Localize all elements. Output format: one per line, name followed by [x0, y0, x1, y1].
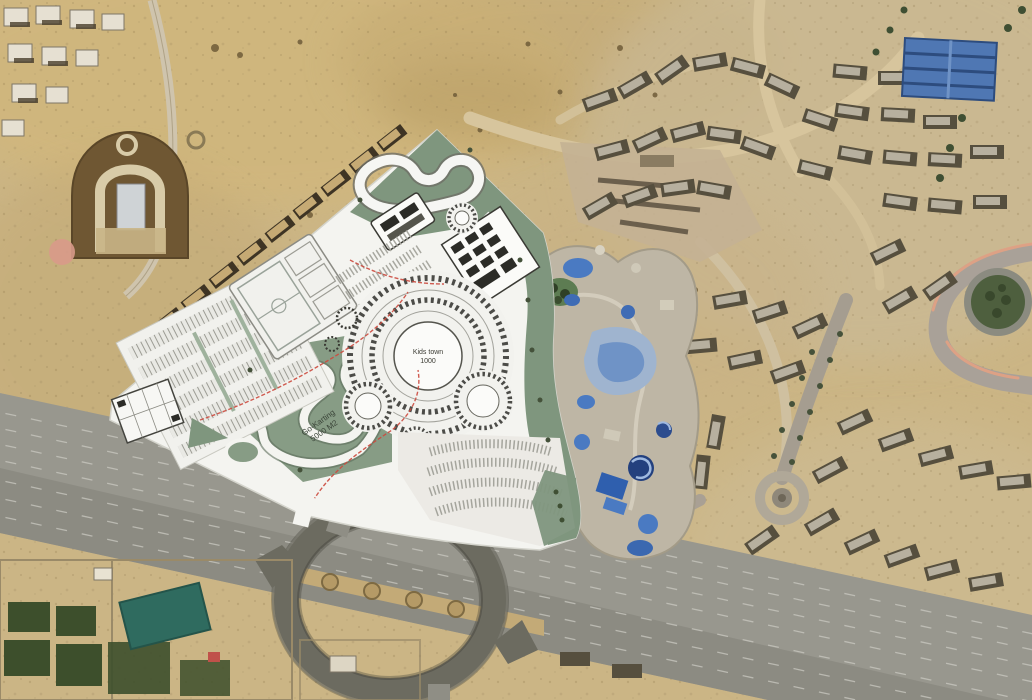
green-roundabout	[964, 268, 1032, 336]
aerial-canvas: Go-Karting 5000 M2	[0, 0, 1032, 700]
satellite-map: Go-Karting 5000 M2	[0, 0, 1032, 700]
dropoff-loop	[226, 440, 260, 464]
svg-text:Kids town: Kids town	[413, 349, 443, 356]
svg-text:1000: 1000	[420, 358, 436, 365]
red-roof-shed	[208, 652, 220, 662]
pink-feature	[49, 239, 75, 265]
blue-roof-building	[902, 38, 997, 101]
